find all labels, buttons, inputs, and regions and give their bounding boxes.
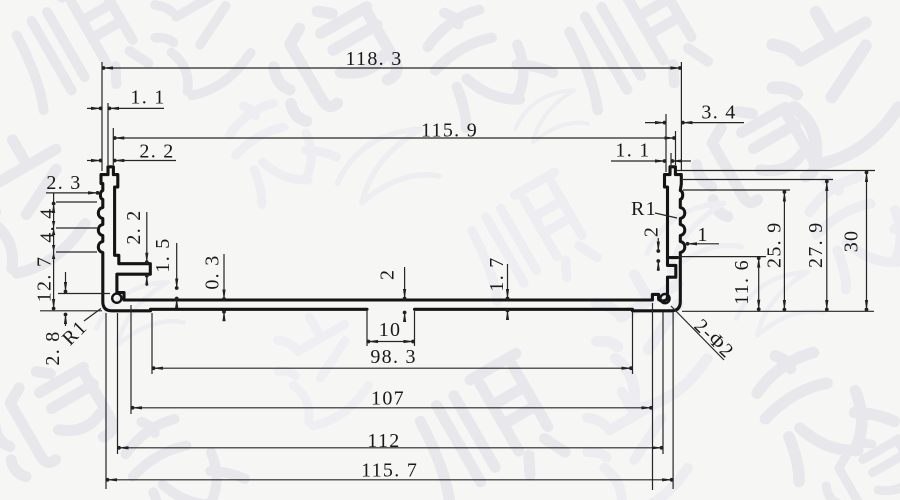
svg-text:115. 7: 115. 7 bbox=[361, 459, 418, 481]
svg-text:4. 4: 4. 4 bbox=[36, 207, 58, 242]
svg-text:2: 2 bbox=[377, 269, 399, 280]
svg-text:2. 2: 2. 2 bbox=[139, 141, 174, 163]
svg-text:1. 1: 1. 1 bbox=[615, 140, 650, 162]
svg-text:0. 3: 0. 3 bbox=[202, 254, 224, 289]
svg-text:3. 4: 3. 4 bbox=[701, 102, 736, 124]
svg-text:1. 5: 1. 5 bbox=[152, 237, 174, 272]
svg-text:30: 30 bbox=[841, 230, 863, 253]
svg-text:25. 9: 25. 9 bbox=[763, 221, 785, 268]
svg-text:2. 2: 2. 2 bbox=[123, 209, 145, 244]
svg-text:10: 10 bbox=[379, 319, 402, 341]
svg-text:115. 9: 115. 9 bbox=[421, 120, 478, 142]
svg-text:11. 6: 11. 6 bbox=[731, 259, 753, 305]
svg-text:27. 9: 27. 9 bbox=[805, 221, 827, 268]
svg-text:112: 112 bbox=[367, 430, 400, 452]
svg-text:1: 1 bbox=[697, 224, 708, 246]
svg-text:2: 2 bbox=[641, 226, 663, 237]
svg-text:R1: R1 bbox=[631, 198, 657, 220]
svg-text:12. 7: 12. 7 bbox=[34, 256, 56, 303]
svg-text:107: 107 bbox=[371, 387, 405, 409]
svg-text:98. 3: 98. 3 bbox=[370, 346, 417, 368]
svg-text:1. 1: 1. 1 bbox=[130, 87, 165, 109]
svg-text:1. 7: 1. 7 bbox=[486, 256, 508, 291]
svg-text:2. 3: 2. 3 bbox=[46, 172, 81, 194]
svg-text:118. 3: 118. 3 bbox=[345, 48, 402, 70]
